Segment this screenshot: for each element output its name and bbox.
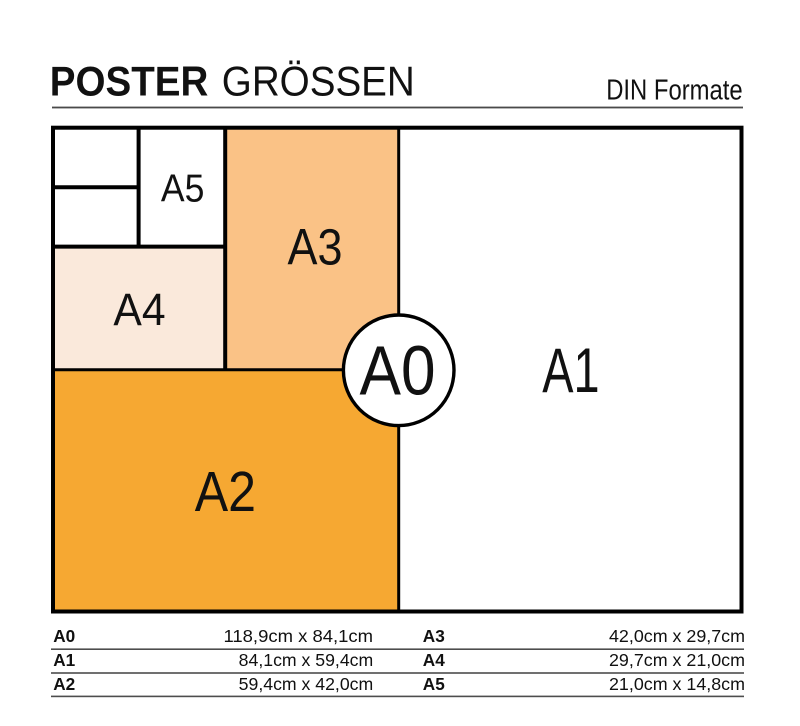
svg-text:A5: A5 [423, 674, 445, 694]
svg-text:118,9cm x 84,1cm: 118,9cm x 84,1cm [224, 626, 374, 646]
svg-text:59,4cm x 42,0cm: 59,4cm x 42,0cm [239, 674, 374, 694]
svg-text:DIN Formate: DIN Formate [606, 74, 743, 106]
svg-text:21,0cm x 14,8cm: 21,0cm x 14,8cm [609, 674, 745, 694]
svg-text:A0: A0 [53, 626, 75, 646]
svg-text:A1: A1 [53, 650, 75, 670]
svg-text:A4: A4 [423, 650, 445, 670]
svg-text:A2: A2 [53, 674, 75, 694]
svg-text:A4: A4 [113, 284, 165, 335]
svg-text:42,0cm x 29,7cm: 42,0cm x 29,7cm [609, 626, 745, 646]
svg-text:A1: A1 [542, 336, 599, 406]
svg-text:84,1cm x 59,4cm: 84,1cm x 59,4cm [239, 650, 374, 670]
svg-text:A3: A3 [423, 626, 445, 646]
svg-text:A0: A0 [360, 332, 436, 410]
svg-text:29,7cm x 21,0cm: 29,7cm x 21,0cm [609, 650, 745, 670]
svg-text:A2: A2 [195, 460, 256, 524]
svg-text:POSTER: POSTER [50, 58, 209, 105]
svg-text:A5: A5 [161, 168, 205, 211]
svg-text:GRÖSSEN: GRÖSSEN [222, 58, 415, 105]
svg-text:A3: A3 [288, 218, 343, 275]
